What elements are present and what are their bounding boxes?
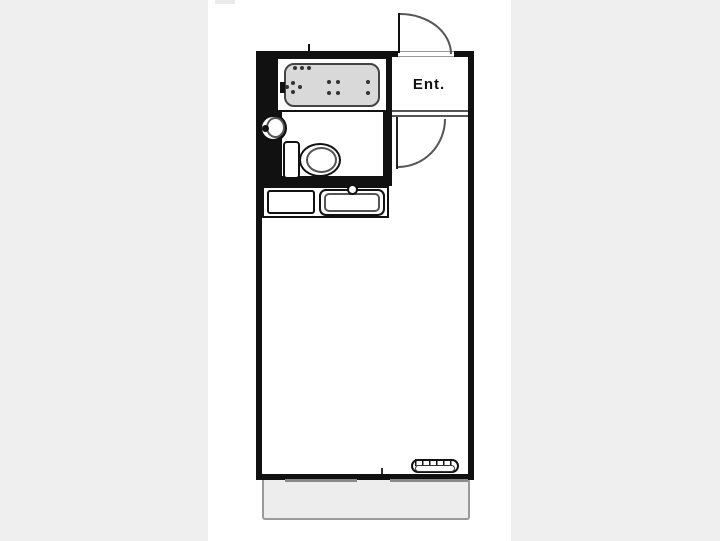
washbasin-drain [262, 125, 269, 132]
kitchen-sink-basin [324, 193, 380, 212]
shower-dot [307, 66, 311, 70]
balcony [262, 480, 470, 520]
tub-dot [298, 85, 302, 89]
air-conditioner-vent [415, 465, 455, 472]
tub-dot [291, 90, 295, 94]
window-center-tick [381, 468, 383, 474]
tub-dot [336, 91, 340, 95]
tub-dot [336, 80, 340, 84]
kitchen-range-space [267, 190, 315, 214]
entrance-partition [392, 110, 468, 117]
balcony-window-sill-left [285, 479, 357, 482]
shower-dot [293, 66, 297, 70]
tub-dot [285, 85, 289, 89]
balcony-window-sill-right [390, 479, 468, 482]
tub-dot [327, 91, 331, 95]
toilet-tank [283, 141, 300, 179]
floorplan-screen: Ent. [0, 0, 720, 541]
tub-dot [366, 80, 370, 84]
crop-artifact [215, 0, 235, 4]
tub-dot [291, 81, 295, 85]
toilet-bowl-inner [306, 147, 337, 173]
kitchen-faucet [347, 184, 358, 195]
bathroom-bottom-wall [262, 176, 392, 186]
tub-dot [327, 80, 331, 84]
pipe-tick [308, 44, 310, 59]
shower-dot [300, 66, 304, 70]
tub-dot [366, 91, 370, 95]
entrance-label: Ent. [398, 75, 460, 95]
